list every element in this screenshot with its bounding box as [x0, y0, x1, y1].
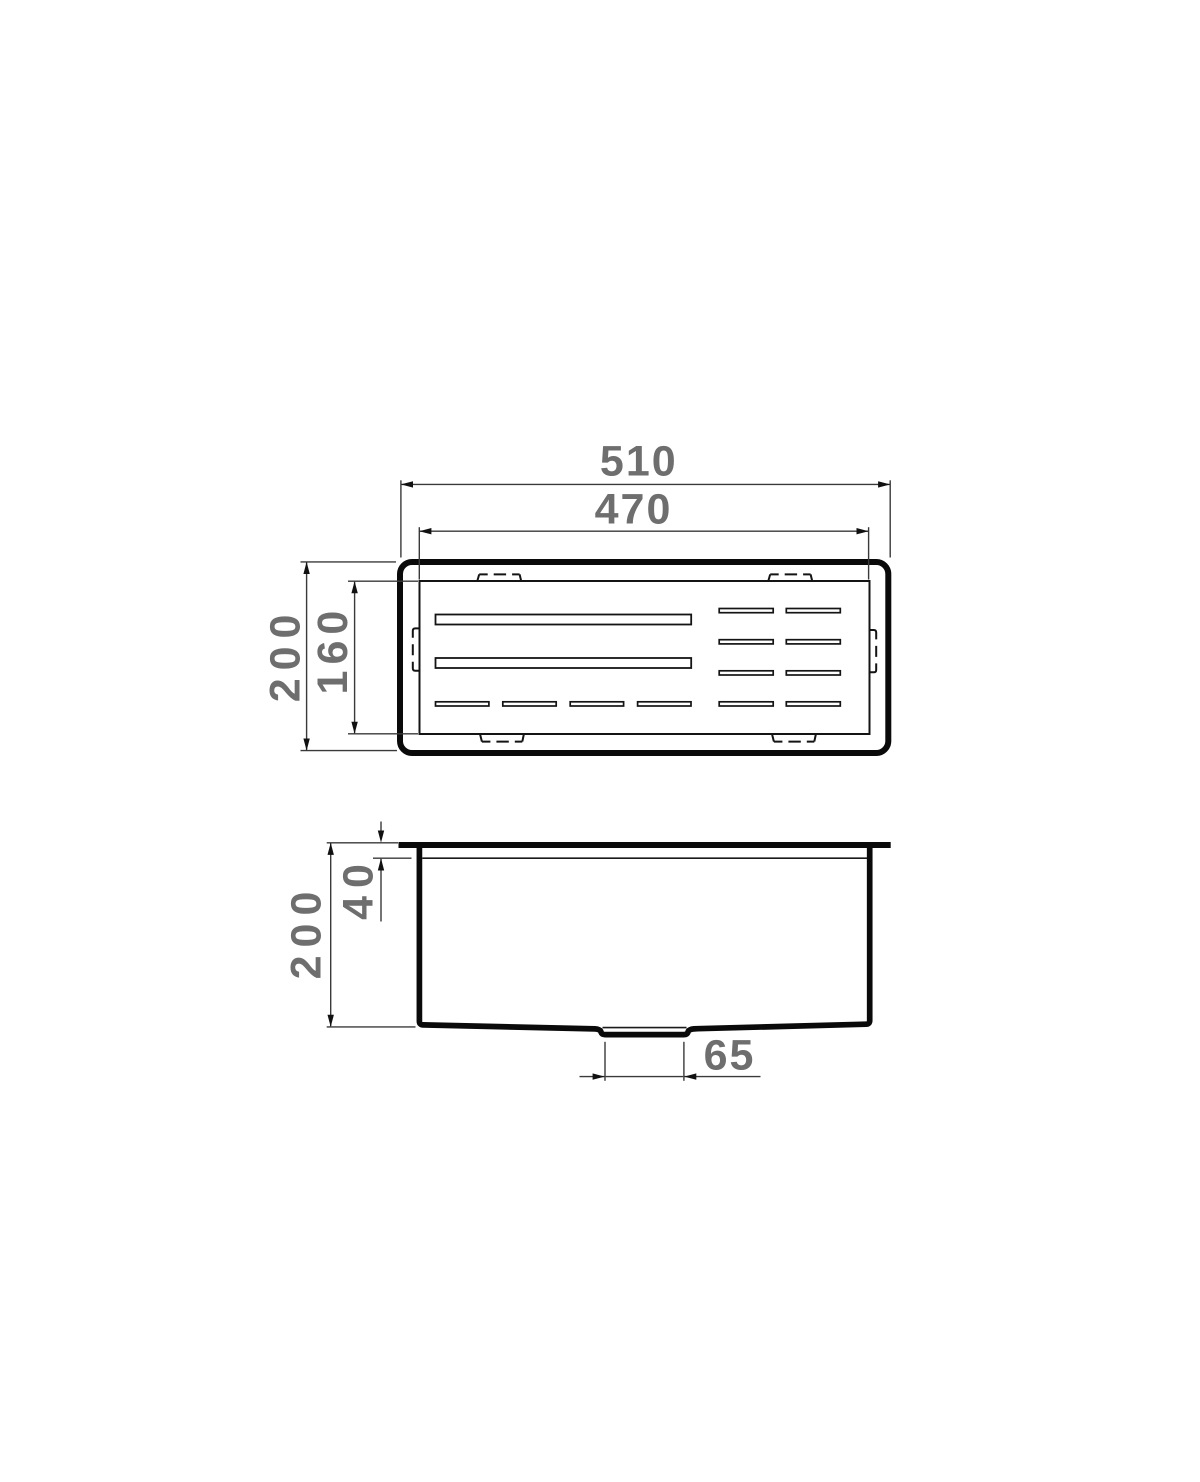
svg-text:40: 40 [334, 856, 382, 920]
svg-text:470: 470 [595, 485, 673, 533]
svg-text:200: 200 [262, 607, 310, 703]
svg-text:510: 510 [600, 438, 678, 486]
svg-text:200: 200 [283, 884, 331, 980]
svg-text:160: 160 [309, 605, 357, 695]
svg-text:65: 65 [704, 1032, 756, 1080]
